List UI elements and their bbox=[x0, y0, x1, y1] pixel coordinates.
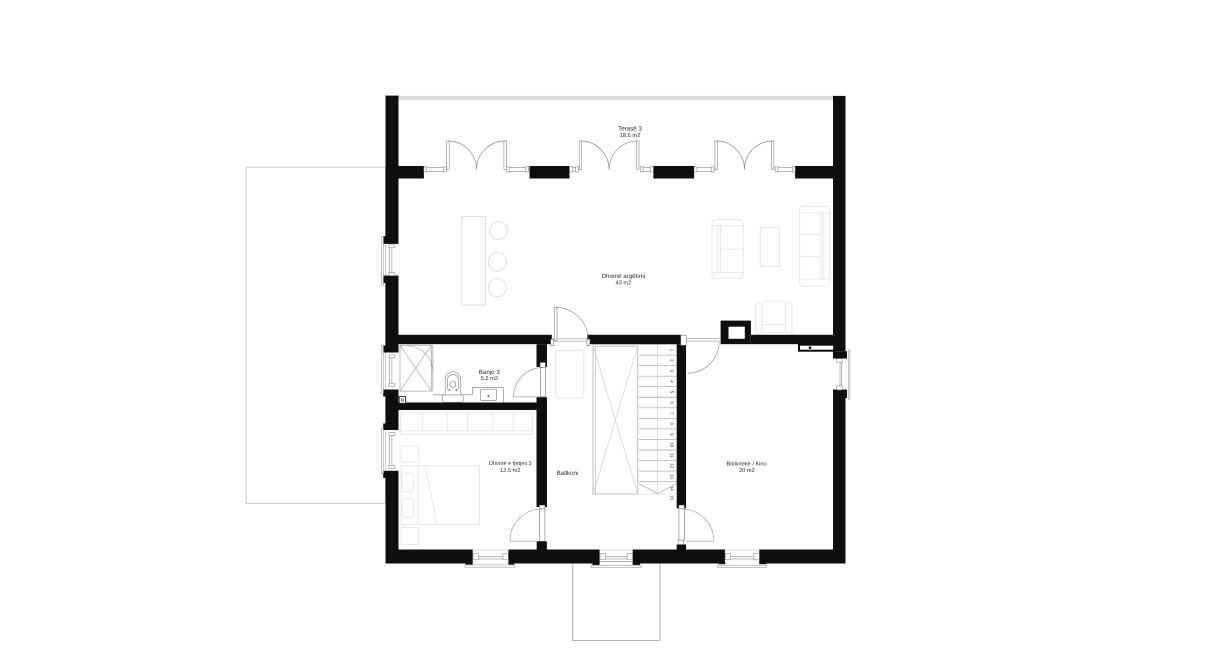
svg-text:Banjo 3: Banjo 3 bbox=[479, 369, 501, 376]
svg-text:10: 10 bbox=[669, 442, 674, 447]
svg-text:Dhomë e fjetjes 5: Dhomë e fjetjes 5 bbox=[489, 461, 532, 467]
svg-text:Ballkoni: Ballkoni bbox=[557, 470, 579, 477]
svg-text:18.6 m2: 18.6 m2 bbox=[620, 133, 641, 139]
svg-text:Terasë 3: Terasë 3 bbox=[618, 125, 642, 132]
svg-text:11: 11 bbox=[669, 453, 674, 458]
svg-text:Bibliotekë / Kino: Bibliotekë / Kino bbox=[727, 461, 767, 468]
svg-text:15: 15 bbox=[669, 495, 674, 500]
svg-text:43 m2: 43 m2 bbox=[615, 281, 631, 287]
svg-text:12.5 m2: 12.5 m2 bbox=[500, 468, 521, 474]
svg-text:13: 13 bbox=[669, 474, 674, 479]
svg-text:20 m2: 20 m2 bbox=[739, 468, 755, 474]
svg-text:5.2 m2: 5.2 m2 bbox=[481, 376, 498, 382]
svg-text:12: 12 bbox=[669, 463, 674, 468]
svg-text:Dhomë argëtimi: Dhomë argëtimi bbox=[602, 273, 646, 280]
svg-text:14: 14 bbox=[669, 486, 674, 491]
